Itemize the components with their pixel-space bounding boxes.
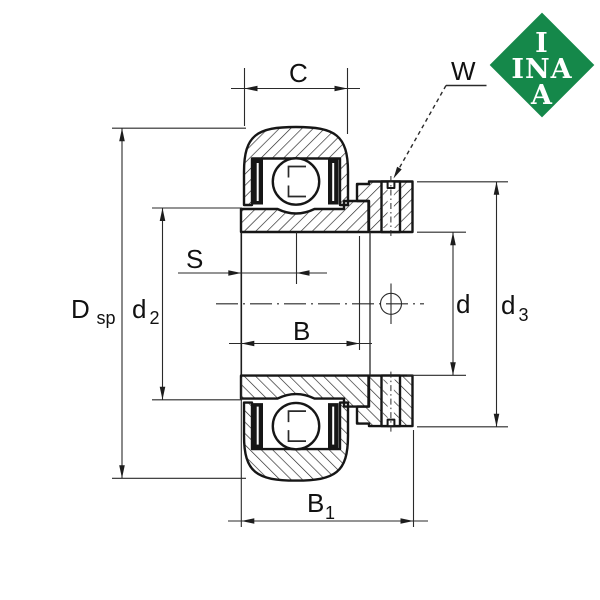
label-d3: d — [501, 290, 515, 320]
set-screw-thread-right — [394, 186, 399, 228]
label-Dsp: D — [71, 294, 90, 324]
dimension-C: C — [231, 58, 360, 134]
ball — [273, 158, 319, 204]
label-S: S — [186, 244, 203, 274]
dimension-S: S — [178, 232, 327, 284]
ina-logo: I INA A — [490, 13, 595, 118]
label-d3-sub: 3 — [519, 305, 529, 325]
label-W: W — [451, 56, 476, 86]
label-C: C — [289, 58, 308, 88]
label-B1-sub: 1 — [325, 503, 335, 523]
set-screw-slot — [388, 182, 395, 189]
inner-ring-section — [241, 201, 369, 232]
dimension-d3: d 3 — [417, 182, 529, 427]
ina-logo-line3: A — [530, 80, 553, 111]
label-d2-sub: 2 — [150, 308, 160, 328]
bearing-technical-drawing: C W S B B 1 D sp d — [0, 0, 600, 600]
label-Dsp-sub: sp — [97, 308, 116, 328]
leader-W: W — [394, 56, 487, 179]
label-d2: d — [132, 294, 146, 324]
label-B: B — [293, 316, 310, 346]
label-B1: B — [307, 488, 324, 518]
bearing-upper-half — [241, 127, 413, 237]
set-screw-thread-left — [383, 186, 388, 228]
label-d: d — [456, 289, 470, 319]
bearing-drawing-page: C W S B B 1 D sp d — [0, 0, 600, 600]
dimension-d: d — [407, 232, 470, 375]
bearing-lower-half — [241, 371, 413, 481]
dimension-B: B — [229, 236, 372, 350]
